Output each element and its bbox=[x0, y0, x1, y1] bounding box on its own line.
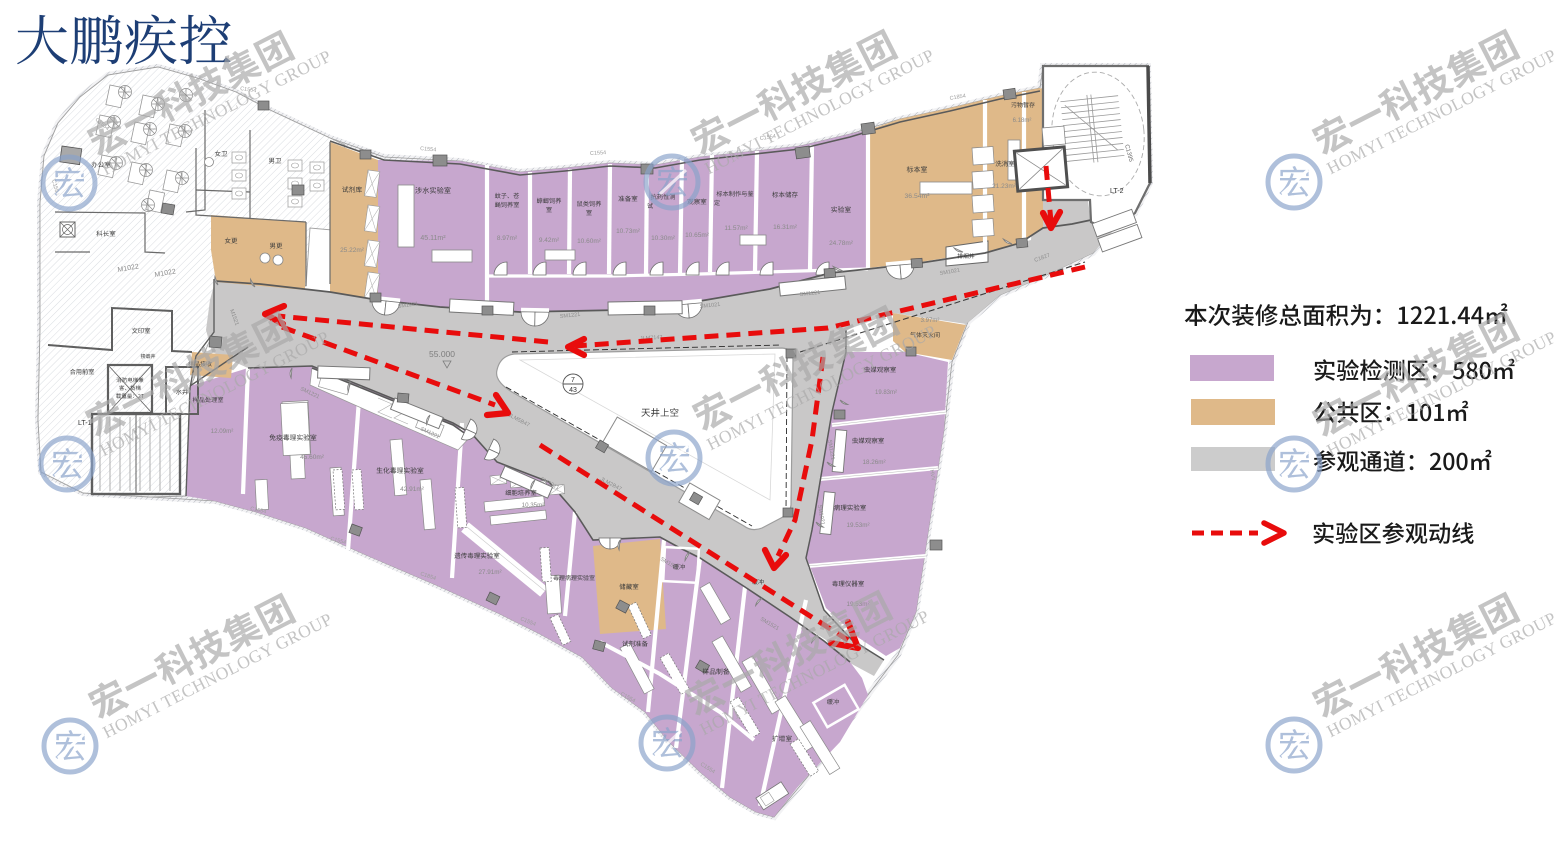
svg-text:25.22m²: 25.22m² bbox=[340, 247, 365, 254]
svg-text:18.26m²: 18.26m² bbox=[862, 459, 885, 466]
svg-text:9.42m²: 9.42m² bbox=[539, 237, 560, 244]
svg-text:LT-2: LT-2 bbox=[1110, 188, 1124, 195]
svg-text:19.53m²: 19.53m² bbox=[846, 522, 869, 529]
svg-text:8.97m²: 8.97m² bbox=[497, 235, 518, 242]
svg-text:43: 43 bbox=[569, 387, 577, 394]
svg-text:12.09m²: 12.09m² bbox=[211, 428, 234, 435]
svg-text:10.60m²: 10.60m² bbox=[577, 238, 602, 245]
svg-text:36.54m²: 36.54m² bbox=[905, 193, 931, 200]
svg-text:10.73m²: 10.73m² bbox=[616, 228, 641, 235]
svg-text:21.23m²: 21.23m² bbox=[992, 183, 1017, 190]
svg-text:10.30m²: 10.30m² bbox=[651, 235, 676, 242]
svg-text:6.18m²: 6.18m² bbox=[1013, 118, 1032, 124]
svg-text:C1554: C1554 bbox=[590, 150, 607, 157]
svg-text:45.11m²: 45.11m² bbox=[420, 235, 446, 242]
svg-text:42.91m²: 42.91m² bbox=[400, 486, 425, 493]
svg-text:19.83m²: 19.83m² bbox=[875, 390, 897, 396]
svg-text:11.57m²: 11.57m² bbox=[724, 225, 748, 232]
svg-text:45.60m²: 45.60m² bbox=[300, 454, 325, 461]
svg-text:27.91m²: 27.91m² bbox=[478, 569, 501, 576]
svg-text:55.000: 55.000 bbox=[429, 349, 455, 359]
svg-text:7: 7 bbox=[571, 377, 575, 384]
svg-text:10.65m²: 10.65m² bbox=[685, 232, 710, 239]
svg-text:10.35m²: 10.35m² bbox=[522, 502, 545, 509]
svg-text:24.78m²: 24.78m² bbox=[829, 240, 854, 247]
svg-text:16.31m²: 16.31m² bbox=[773, 224, 798, 231]
